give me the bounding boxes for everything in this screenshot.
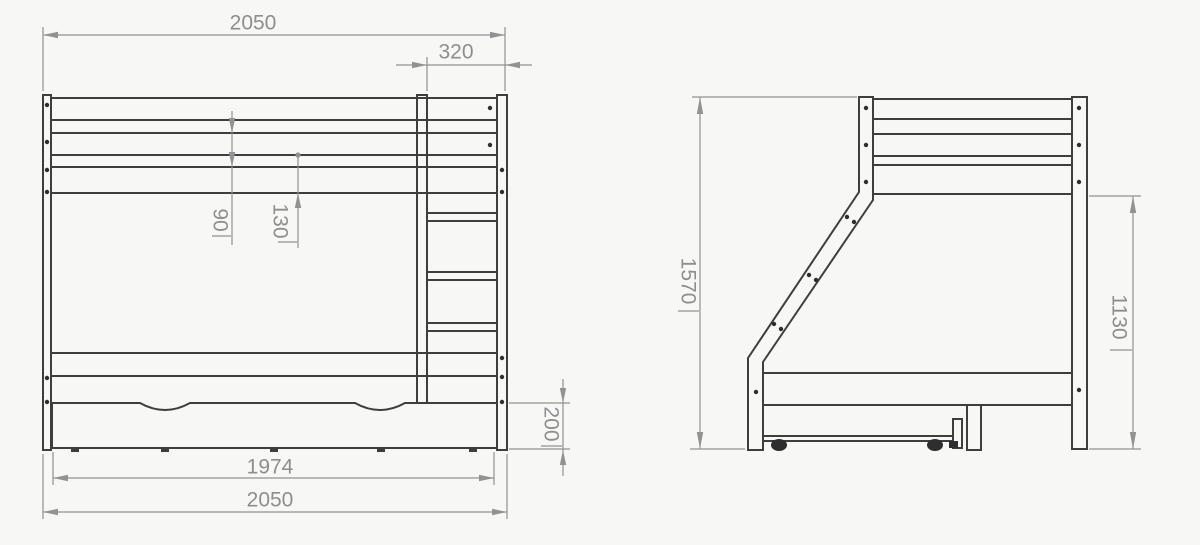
side-drawer-bottom bbox=[763, 436, 953, 441]
arrowhead-down bbox=[697, 432, 703, 449]
side-screw-dots bbox=[754, 106, 1081, 394]
dim-label-drawer-width: 1974 bbox=[247, 456, 294, 479]
dim-origin-dot bbox=[295, 152, 300, 157]
front-ladder-post bbox=[417, 95, 427, 403]
side-guard-rail-top bbox=[873, 99, 1072, 119]
arrowhead-up bbox=[697, 97, 703, 114]
arrowhead-down bbox=[1130, 432, 1136, 449]
front-guard-rail-middle bbox=[51, 133, 497, 155]
front-right-post bbox=[497, 95, 507, 450]
dim-label-rail-spacing: 130 bbox=[269, 203, 292, 238]
dim-label-guard-rail-gap: 90 bbox=[209, 208, 232, 231]
arrowhead-left bbox=[505, 62, 520, 68]
drawer-foot bbox=[161, 448, 169, 452]
front-left-post bbox=[43, 95, 51, 450]
side-upper-bed-rail bbox=[873, 165, 1072, 194]
technical-drawing-bunk-bed: 2050 320 90 130 200 bbox=[0, 0, 1200, 545]
arrowhead-right bbox=[479, 475, 494, 481]
front-view: 2050 320 90 130 200 bbox=[43, 12, 570, 520]
arrowhead-right bbox=[490, 32, 505, 38]
front-lower-bed-rail bbox=[51, 353, 497, 376]
front-screw-dots bbox=[45, 103, 504, 404]
dim-label-total-width-top: 2050 bbox=[230, 12, 277, 35]
arrowhead-up bbox=[295, 193, 301, 208]
front-guard-rail-top bbox=[51, 98, 497, 120]
drawer-foot bbox=[270, 448, 278, 452]
front-upper-bed-rail bbox=[51, 167, 497, 193]
arrowhead-right bbox=[412, 62, 427, 68]
arrowhead-up bbox=[560, 450, 566, 465]
side-lower-bed-rail bbox=[763, 373, 1072, 405]
caster-bracket bbox=[949, 441, 958, 448]
dim-label-total-width-bottom: 2050 bbox=[247, 489, 294, 512]
front-drawer bbox=[52, 403, 497, 448]
dim-ladder-width: 320 bbox=[396, 41, 532, 92]
side-view: 1570 1130 bbox=[677, 97, 1142, 451]
dim-total-width-top: 2050 bbox=[43, 12, 505, 92]
dim-label-under-rail-height: 1130 bbox=[1108, 294, 1131, 339]
arrowhead-up bbox=[1130, 196, 1136, 213]
arrowhead-down bbox=[560, 388, 566, 403]
side-guard-rail-middle bbox=[873, 134, 1072, 156]
arrowhead-down bbox=[229, 118, 235, 133]
dim-under-rail-height: 1130 bbox=[1089, 196, 1141, 449]
side-right-post bbox=[1072, 97, 1087, 449]
arrowhead-left bbox=[53, 475, 68, 481]
arrowhead-down bbox=[229, 152, 235, 167]
caster-wheel bbox=[927, 439, 943, 451]
arrowhead-left bbox=[43, 32, 58, 38]
ladder-rung-2 bbox=[427, 272, 497, 280]
ladder-rung-3 bbox=[427, 323, 497, 331]
ladder-rung-1 bbox=[427, 213, 497, 221]
dim-drawer-width: 1974 bbox=[53, 452, 494, 485]
dim-guard-rail-gap: 90 bbox=[209, 111, 236, 245]
drawer-foot bbox=[469, 448, 477, 452]
side-support-leg bbox=[967, 405, 981, 450]
drawer-foot bbox=[377, 448, 385, 452]
dim-label-drawer-height: 200 bbox=[540, 406, 563, 441]
arrowhead-left bbox=[43, 509, 58, 515]
drawer-foot bbox=[71, 448, 79, 452]
dim-label-total-height: 1570 bbox=[677, 258, 700, 305]
caster-wheel bbox=[771, 439, 787, 451]
dim-label-ladder-width: 320 bbox=[438, 41, 473, 64]
dim-drawer-height: 200 bbox=[509, 379, 570, 476]
drawing-svg: 2050 320 90 130 200 bbox=[0, 0, 1200, 545]
arrowhead-right bbox=[492, 509, 507, 515]
dim-total-height: 1570 bbox=[677, 97, 858, 449]
